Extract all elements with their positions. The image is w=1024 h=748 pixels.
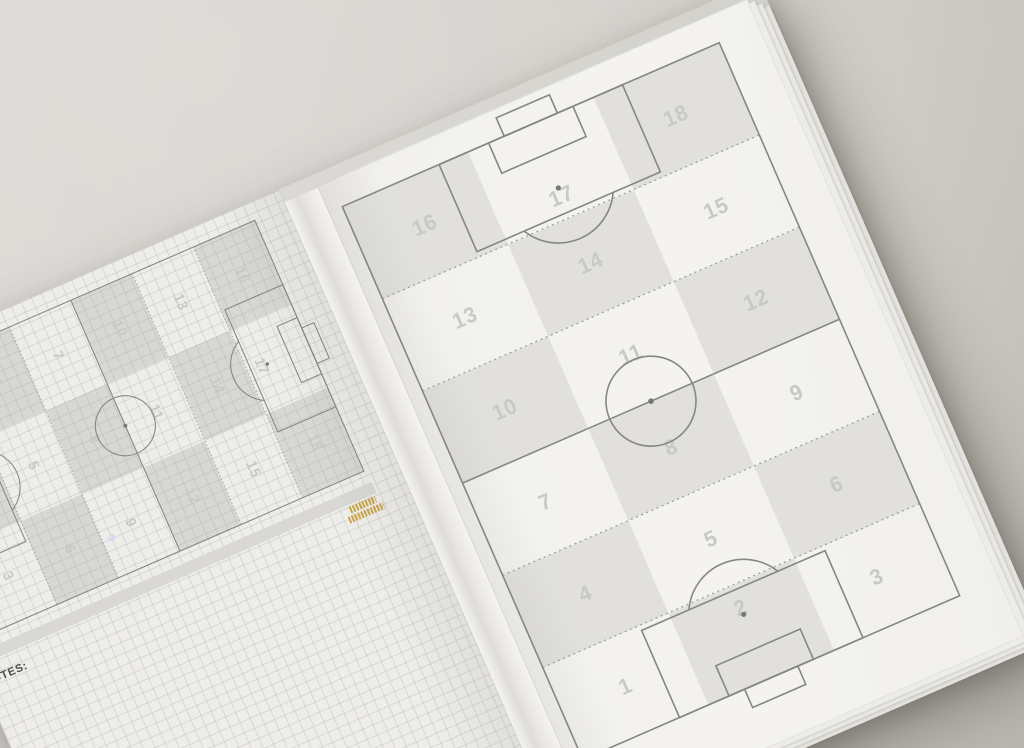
photo-scene: 16 17 18 13 14 15 10 11 12 7 8 9 4 5 bbox=[0, 0, 1024, 748]
notes-label: NOTES: bbox=[0, 660, 30, 689]
